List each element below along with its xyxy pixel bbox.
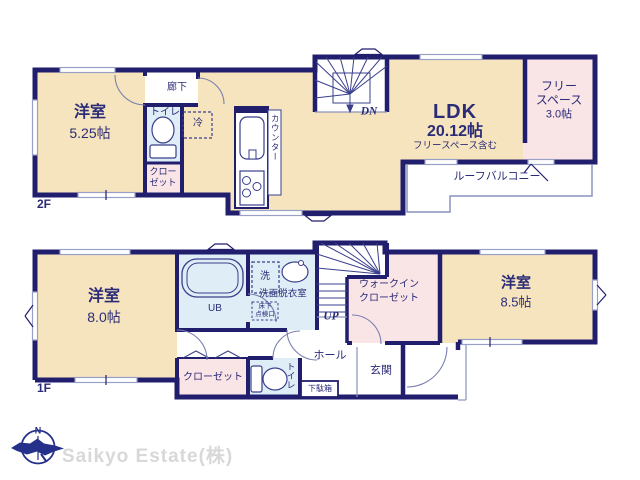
room-label-bedroom1f-a: 洋室 [88, 289, 120, 305]
room-label-freespace-1: フリー [541, 80, 577, 92]
room-label-hall: ホール [314, 351, 347, 362]
room-label-bedroom1f-b: 洋室 [501, 276, 531, 291]
label-counter: カウンター [271, 114, 280, 162]
toilet1f-icon [251, 366, 287, 392]
floor1-vent [208, 244, 234, 250]
room-label-closet2f-2: ゼット [149, 179, 176, 188]
kitchen-faucet-icon [249, 150, 256, 159]
room-label-corridor: 廊下 [167, 83, 187, 93]
room-label-toilet1f: トイレ [286, 362, 295, 389]
room-label-wic-1: ウォークイン [359, 280, 419, 290]
room-size-ldk: 20.12帖 [427, 124, 483, 140]
room-label-closet1f: クローゼット [183, 373, 243, 383]
room-size-bedroom1f-b: 8.5帖 [500, 296, 531, 309]
room-label-ldk: LDK [433, 102, 477, 122]
room-size-freespace: 3.0帖 [546, 110, 572, 121]
toilet2f-icon [150, 117, 176, 158]
label-floor-hatch-2: 点検口 [255, 312, 275, 319]
label-shoebox: 下駄箱 [308, 385, 332, 393]
compass-north-label: N [35, 427, 42, 436]
room-size-bedroom2f: 5.25帖 [69, 126, 110, 140]
room-size-bedroom1f-a: 8.0帖 [87, 310, 120, 324]
floorplan-drawing [0, 0, 640, 480]
floor2-label: 2F [37, 198, 51, 210]
label-roof-balcony: ルーフバルコニー [453, 172, 540, 183]
company-logo-text: Saikyo Estate(株) [62, 441, 233, 468]
room-label-freespace-2: スペース [536, 94, 583, 106]
floor1-label: 1F [37, 382, 51, 394]
room-note-ldk: フリースペース含む [413, 141, 497, 151]
floorplan-page: 洋室 5.25帖 廊下 トイレ 冷 クロー ゼット カウンター DN LDK 2… [0, 0, 640, 480]
room-label-wic-2: クローゼット [359, 294, 419, 304]
label-fridge: 冷 [193, 119, 203, 129]
room-label-entrance: 玄関 [370, 366, 392, 377]
room-label-closet2f-1: クロー [149, 168, 176, 177]
room-label-washroom: 洗面脱衣室 [259, 289, 307, 299]
unitbath-floor [177, 252, 248, 330]
label-stairs-up: UP [323, 311, 338, 323]
label-stairs-dn: DN [361, 106, 378, 118]
label-washer: 洗 [260, 272, 270, 282]
floor2-plan [33, 49, 596, 221]
room-label-unitbath: UB [208, 304, 222, 314]
room-label-bedroom2f: 洋室 [74, 105, 106, 121]
label-floor-hatch-1: 床下 [259, 304, 272, 311]
room-label-toilet2f: トイレ [150, 108, 180, 118]
